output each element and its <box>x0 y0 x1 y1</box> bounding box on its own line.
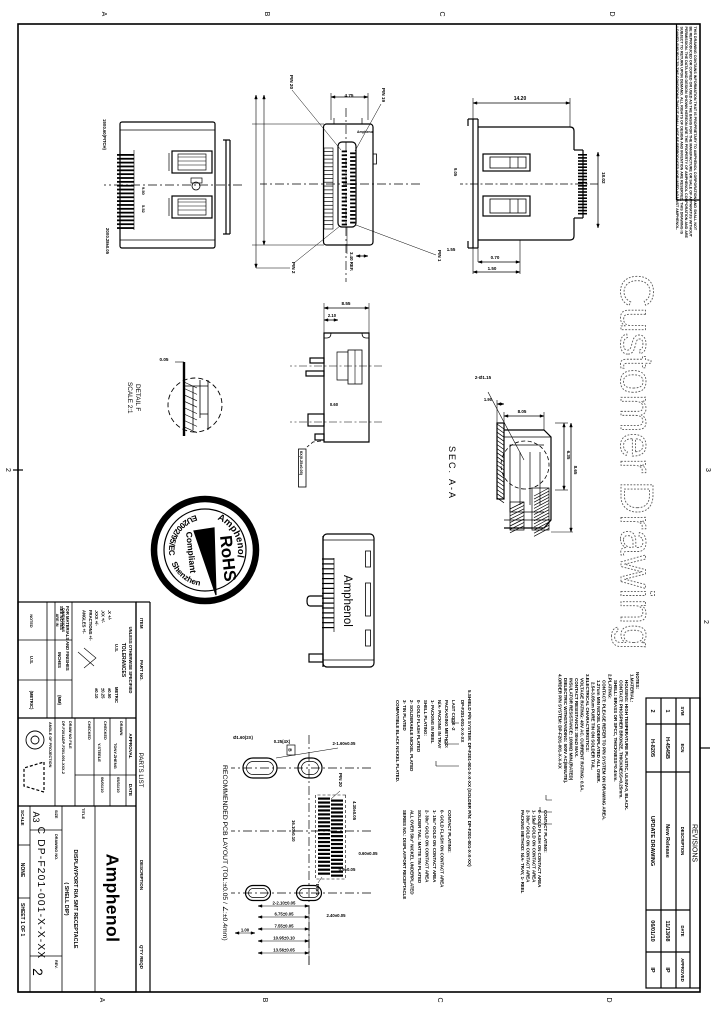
svg-text:Q'TY REQD: Q'TY REQD <box>139 945 144 969</box>
svg-text:11/13/08: 11/13/08 <box>664 920 670 941</box>
svg-text:0.9±0.05: 0.9±0.05 <box>339 867 356 872</box>
svg-text:C: C <box>438 11 445 16</box>
svg-text:A: A <box>98 998 105 1003</box>
svg-text:H-8205: H-8205 <box>649 739 655 757</box>
svg-text:INCHES: INCHES <box>57 652 62 668</box>
svg-text:PACKING METHOD: N/A- TRAY, 1-: PACKING METHOD: N/A- TRAY, 1- REEL <box>520 810 525 894</box>
svg-text:ARE IN: ARE IN <box>55 614 59 627</box>
svg-text:DATE: DATE <box>680 925 685 936</box>
svg-text:.XX +/-: .XX +/- <box>101 610 106 624</box>
svg-text:05/31/10: 05/31/10 <box>116 777 121 793</box>
svg-text:TONY.ZHENG: TONY.ZHENG <box>113 743 118 769</box>
svg-text:DRAWING NO.: DRAWING NO. <box>54 834 58 860</box>
svg-text:APPROVAL: APPROVAL <box>128 733 133 758</box>
svg-text:REVISIONS: REVISIONS <box>691 824 698 862</box>
svg-text:NOTED: NOTED <box>29 614 33 628</box>
svg-text:PIN 20: PIN 20 <box>289 75 294 89</box>
svg-text:3- TIN PLATED: 3- TIN PLATED <box>402 700 407 731</box>
svg-text:ANGLE OF PROJECTION: ANGLE OF PROJECTION <box>48 722 52 768</box>
svg-text:PERMISSION. THE DATA AND DESIG: PERMISSION. THE DATA AND DESIGN SHOWN HE… <box>684 27 688 239</box>
svg-text:2-1.60±0.05: 2-1.60±0.05 <box>333 741 357 746</box>
svg-text:PIN 2: PIN 2 <box>291 262 296 274</box>
svg-text:2- 30u" GOLD ON CONTACT AREA: 2- 30u" GOLD ON CONTACT AREA <box>526 810 531 883</box>
svg-text:METRIC: METRIC <box>114 687 119 703</box>
svg-text:2- SOLDERABLE NICKEL PLATED: 2- SOLDERABLE NICKEL PLATED <box>409 700 414 771</box>
svg-text:9.05: 9.05 <box>453 168 458 177</box>
svg-text:PIN 1: PIN 1 <box>437 250 442 262</box>
svg-text:0.25(4X): 0.25(4X) <box>274 739 291 744</box>
svg-text:±0.10: ±0.10 <box>94 688 99 699</box>
svg-text:CHECKED: CHECKED <box>103 721 107 740</box>
svg-text:CHECKED: CHECKED <box>87 721 91 740</box>
svg-text:2- 30u" GOLD ON CONTACT AREA: 2- 30u" GOLD ON CONTACT AREA <box>425 810 430 883</box>
svg-text:3.ELECTRICAL CHARACTERISTICS:: 3.ELECTRICAL CHARACTERISTICS: <box>585 674 590 752</box>
svg-text:PART NO.: PART NO. <box>139 660 144 681</box>
svg-text:2: 2 <box>30 968 45 976</box>
svg-text:CONTACT: PHOSPHER BRONZE, THIC: CONTACT: PHOSPHER BRONZE, THICKNESS=0.25… <box>618 680 623 799</box>
svg-text:0.70: 0.70 <box>491 255 500 260</box>
svg-text:1.00: 1.00 <box>241 928 250 933</box>
svg-text:DETAIL F: DETAIL F <box>134 384 141 411</box>
svg-text:2: 2 <box>649 709 655 712</box>
svg-text:C: C <box>436 997 443 1002</box>
svg-text:VOLTAGE RATING: 40V AC. CURRE: VOLTAGE RATING: 40V AC. CURRENT RATING: … <box>580 678 585 792</box>
svg-text:20X0.28±0.05: 20X0.28±0.05 <box>105 228 110 255</box>
svg-text:D: D <box>608 11 615 16</box>
svg-text:14.20: 14.20 <box>514 96 527 102</box>
svg-text:INSULATOR RESISTANCE: 100MΩ MI: INSULATOR RESISTANCE: 100MΩ MIN.(RATED) <box>568 678 573 781</box>
svg-text:RECOMMENDED PCB LAYOUT (TOL:±0: RECOMMENDED PCB LAYOUT (TOL:±0.05 / ∠:±0… <box>221 765 229 941</box>
svg-text:New Release: New Release <box>664 824 670 858</box>
svg-text:1.90: 1.90 <box>484 397 493 402</box>
svg-text:THIS DRAWING CONTAINS INFORMAT: THIS DRAWING CONTAINS INFORMATION THAT I… <box>693 27 697 231</box>
svg-text:6.35: 6.35 <box>566 451 571 460</box>
svg-text:U.S.: U.S. <box>114 644 119 652</box>
svg-text:8.05: 8.05 <box>518 409 527 414</box>
svg-text:FRACTIONS +/-: FRACTIONS +/- <box>88 610 93 641</box>
svg-text:±0.50: ±0.50 <box>107 688 112 699</box>
svg-text:Drawing: Drawing <box>611 481 663 650</box>
svg-text:CONTACT RESISTANCE: 30mΩ MAX.: CONTACT RESISTANCE: 30mΩ MAX. <box>574 678 579 757</box>
svg-text:DRAWN: DRAWN <box>119 721 123 736</box>
svg-text:±0.25: ±0.25 <box>101 688 106 699</box>
svg-text:D: D <box>605 997 612 1002</box>
svg-text:SCALE 2:1: SCALE 2:1 <box>126 382 133 414</box>
svg-text:NOTES:: NOTES: <box>635 672 640 690</box>
svg-text:IP: IP <box>664 967 670 973</box>
svg-text:7.55±0.05: 7.55±0.05 <box>274 924 294 929</box>
svg-text:0.60±0.05: 0.60±0.05 <box>358 851 378 856</box>
svg-text:Ø1.60(2X): Ø1.60(2X) <box>233 735 253 740</box>
svg-text:IP: IP <box>649 967 655 973</box>
svg-text:.X +/-: .X +/- <box>107 610 112 621</box>
svg-text:U.S.: U.S. <box>29 656 34 664</box>
svg-text:Amphenol: Amphenol <box>341 575 353 627</box>
svg-text:19X0.60(PITCH): 19X0.60(PITCH) <box>102 119 107 151</box>
svg-text:SHEET 1 OF 1: SHEET 1 OF 1 <box>19 903 25 937</box>
svg-text:06/01/10: 06/01/10 <box>100 777 105 793</box>
svg-text:N/A- PACKING IN TRAY: N/A- PACKING IN TRAY <box>437 700 442 749</box>
svg-text:UPDATE DRAWING: UPDATE DRAWING <box>649 816 655 866</box>
svg-text:SHELL PLATING:: SHELL PLATING: <box>423 700 428 736</box>
svg-text:BE REPRODUCED OR COPIED OR USE: BE REPRODUCED OR COPIED OR USED AS THE B… <box>689 27 693 238</box>
svg-text:A: A <box>100 12 107 17</box>
svg-text:2: 2 <box>702 620 709 624</box>
svg-text:DATE: DATE <box>128 784 133 796</box>
svg-text:NONE: NONE <box>19 863 25 878</box>
svg-text:1: 1 <box>664 709 670 712</box>
svg-text:5.52: 5.52 <box>141 205 146 214</box>
svg-text:CONTACT: PLEASE REFER TO P/N S: CONTACT: PLEASE REFER TO P/N SYSTEM ON D… <box>602 680 607 820</box>
svg-text:2.10: 2.10 <box>328 313 337 318</box>
svg-text:TOLERANCES: TOLERANCES <box>120 643 126 678</box>
svg-text:CONTACT PLATING:: CONTACT PLATING: <box>543 810 548 853</box>
svg-text:4.75: 4.75 <box>345 93 354 98</box>
svg-text:( SHELL DIP): ( SHELL DIP) <box>63 882 69 915</box>
svg-text:CONTACT PLATING:: CONTACT PLATING: <box>447 810 452 853</box>
svg-text:PIN 20: PIN 20 <box>338 773 343 787</box>
svg-text:(METRIC): (METRIC) <box>29 691 34 710</box>
svg-text:3.40 REF.: 3.40 REF. <box>349 252 354 271</box>
svg-text:LOANED SUBJECT TO THE CONDITIO: LOANED SUBJECT TO THE CONDITIONS THAT IT… <box>675 27 679 231</box>
svg-text:TITLE: TITLE <box>81 808 86 819</box>
svg-text:2.40±0.05: 2.40±0.05 <box>326 913 346 918</box>
svg-text:8X(0.25±0.05): 8X(0.25±0.05) <box>299 451 303 476</box>
svg-text:4.30±0.05: 4.30±0.05 <box>352 801 357 821</box>
svg-text:SOLDER TAIL: MATTE TIN PLATED: SOLDER TAIL: MATTE TIN PLATED <box>417 810 422 883</box>
svg-text:Customer: Customer <box>611 274 663 473</box>
svg-text:2.54-3.05um PURE TIN ON SOLDER: 2.54-3.05um PURE TIN ON SOLDER TAIL. <box>591 682 596 770</box>
svg-text:9.50: 9.50 <box>141 187 146 196</box>
svg-text:ECN: ECN <box>680 744 685 753</box>
svg-text:HOUSING: HIGH TEMPERATURE PLAS: HOUSING: HIGH TEMPERATURE PLASTIC, UL94V… <box>624 680 629 810</box>
svg-text:5.SHIELD P/N SYSTEM: DP-F201-0: 5.SHIELD P/N SYSTEM: DP-F201-001-X-X-XX … <box>467 690 472 867</box>
svg-text:SHELL: BRASS OR SPCC, THICKNES: SHELL: BRASS OR SPCC, THICKNESS=0.4mm. <box>613 680 618 782</box>
svg-text:1.55: 1.55 <box>447 247 456 252</box>
svg-text:Amphenol: Amphenol <box>103 854 123 943</box>
svg-text:ALL OVER 50u" NICKEL UNDERPLAT: ALL OVER 50u" NICKEL UNDERPLATED <box>410 810 415 895</box>
svg-text:1.50: 1.50 <box>488 266 497 271</box>
svg-text:DRAW NO FILE: DRAW NO FILE <box>68 721 72 749</box>
svg-text:SIZE: SIZE <box>54 810 58 819</box>
svg-text:1- 15u" GOLD ON CONTACT AREA: 1- 15u" GOLD ON CONTACT AREA <box>432 810 437 883</box>
svg-text:DISPLAYPORT R/A SMT RECEPTACLE: DISPLAYPORT R/A SMT RECEPTACLE <box>72 850 78 949</box>
svg-text:2.PLATING:: 2.PLATING: <box>607 674 612 699</box>
svg-text:DIELECTRIC WITHSTANDING: 500V: DIELECTRIC WITHSTANDING: 500V AC(MINUTE)… <box>563 678 568 783</box>
svg-text:DP-F201-001-X-X-XX: DP-F201-001-X-X-XX <box>460 700 465 743</box>
svg-text:1.MATERIAL:: 1.MATERIAL: <box>629 674 634 703</box>
svg-text:(MM): (MM) <box>57 695 62 705</box>
svg-text:H-4545B: H-4545B <box>664 737 670 759</box>
svg-text:APPROVED: APPROVED <box>680 958 685 982</box>
svg-text:DESCRIPTION: DESCRIPTION <box>680 827 685 856</box>
svg-text:DESCRIPTION: DESCRIPTION <box>139 860 144 890</box>
svg-text:FOR MATERIALS AND FINISHES: FOR MATERIALS AND FINISHES <box>65 606 70 671</box>
svg-text:REV.: REV. <box>54 960 58 969</box>
svg-text:4.ORDER P/N SYSTEM: DP-F201-00: 4.ORDER P/N SYSTEM: DP-F201-001-X-X-XX <box>557 674 562 769</box>
svg-text:10.95±0.10: 10.95±0.10 <box>273 936 295 941</box>
svg-text:18.02: 18.02 <box>601 172 606 184</box>
svg-text:13.56±0.05: 13.56±0.05 <box>273 948 295 953</box>
svg-text:PIN 1: PIN 1 <box>315 884 320 896</box>
svg-text:2: 2 <box>4 468 11 472</box>
svg-text:.XXX +/-: .XXX +/- <box>94 610 99 626</box>
svg-text:1- PACKING IN REEL: 1- PACKING IN REEL <box>430 700 435 744</box>
svg-text:UNLESS OTHERWISE SPECIFIED: UNLESS OTHERWISE SPECIFIED <box>128 627 133 694</box>
svg-text:PARTS LIST: PARTS LIST <box>137 753 144 788</box>
svg-text:SERIES NO.: DISPLAYPORT RECEPT: SERIES NO.: DISPLAYPORT RECEPTACLE <box>402 810 407 899</box>
svg-text:B: B <box>261 998 268 1003</box>
svg-text:2-2.10±0.05: 2-2.10±0.05 <box>273 901 297 906</box>
svg-text:SYM: SYM <box>680 706 685 716</box>
svg-text:6.75±0.05: 6.75±0.05 <box>274 912 294 917</box>
svg-text:8.55: 8.55 <box>342 301 351 306</box>
svg-text:0- GOLD FLASH ON CONTACT AREA: 0- GOLD FLASH ON CONTACT AREA <box>440 810 445 888</box>
svg-text:8.65: 8.65 <box>573 466 578 475</box>
svg-text:0- GOLD FLASH ON CONTACT AREA: 0- GOLD FLASH ON CONTACT AREA <box>537 810 542 888</box>
svg-text:0- GOLD FLASH PLATED: 0- GOLD FLASH PLATED <box>416 700 421 752</box>
svg-text:DIMENSIONS: DIMENSIONS <box>61 608 65 633</box>
svg-text:PIN 19: PIN 19 <box>381 88 386 102</box>
svg-text:1.27um MIN NICKEL UNDERPLATED: 1.27um MIN NICKEL UNDERPLATED ALL OVER. <box>596 680 601 783</box>
svg-text:A3: A3 <box>31 811 41 822</box>
svg-text:0.05: 0.05 <box>160 357 169 362</box>
svg-text:3: 3 <box>704 468 711 472</box>
svg-text:06/01/10: 06/01/10 <box>649 920 655 941</box>
svg-text:SEC. A-A: SEC. A-A <box>447 446 457 500</box>
svg-text:PACKAGING METHOD:: PACKAGING METHOD: <box>444 700 449 749</box>
svg-text:ANGLES +/-: ANGLES +/- <box>81 610 86 634</box>
svg-text:SUBJECT TO RETURN UPON DEMAND.: SUBJECT TO RETURN UPON DEMAND. ALL RIGHT… <box>680 27 684 235</box>
svg-text:LAST CODE -2: LAST CODE -2 <box>451 700 456 731</box>
svg-text:16.10±0.10: 16.10±0.10 <box>291 820 296 842</box>
svg-text:COMPATIBLE BLACK NICKEL PLATED: COMPATIBLE BLACK NICKEL PLATED. <box>395 700 400 782</box>
svg-text:Y.STEELE: Y.STEELE <box>97 743 102 762</box>
svg-text:1- 15u" GOLD ON CONTACT AREA: 1- 15u" GOLD ON CONTACT AREA <box>531 810 536 883</box>
svg-text:C DP-F201-001-X-X-XX: C DP-F201-001-X-X-XX <box>35 827 46 960</box>
svg-text:B: B <box>263 12 270 17</box>
svg-text:SCALE: SCALE <box>20 810 25 826</box>
svg-text:ITEM: ITEM <box>139 618 144 629</box>
svg-text:0.60: 0.60 <box>330 402 339 407</box>
svg-text:DP-F201&DP-F201-001-XXX-2: DP-F201&DP-F201-001-XXX-2 <box>61 721 65 774</box>
svg-text:2-Ø1.15: 2-Ø1.15 <box>475 375 492 380</box>
